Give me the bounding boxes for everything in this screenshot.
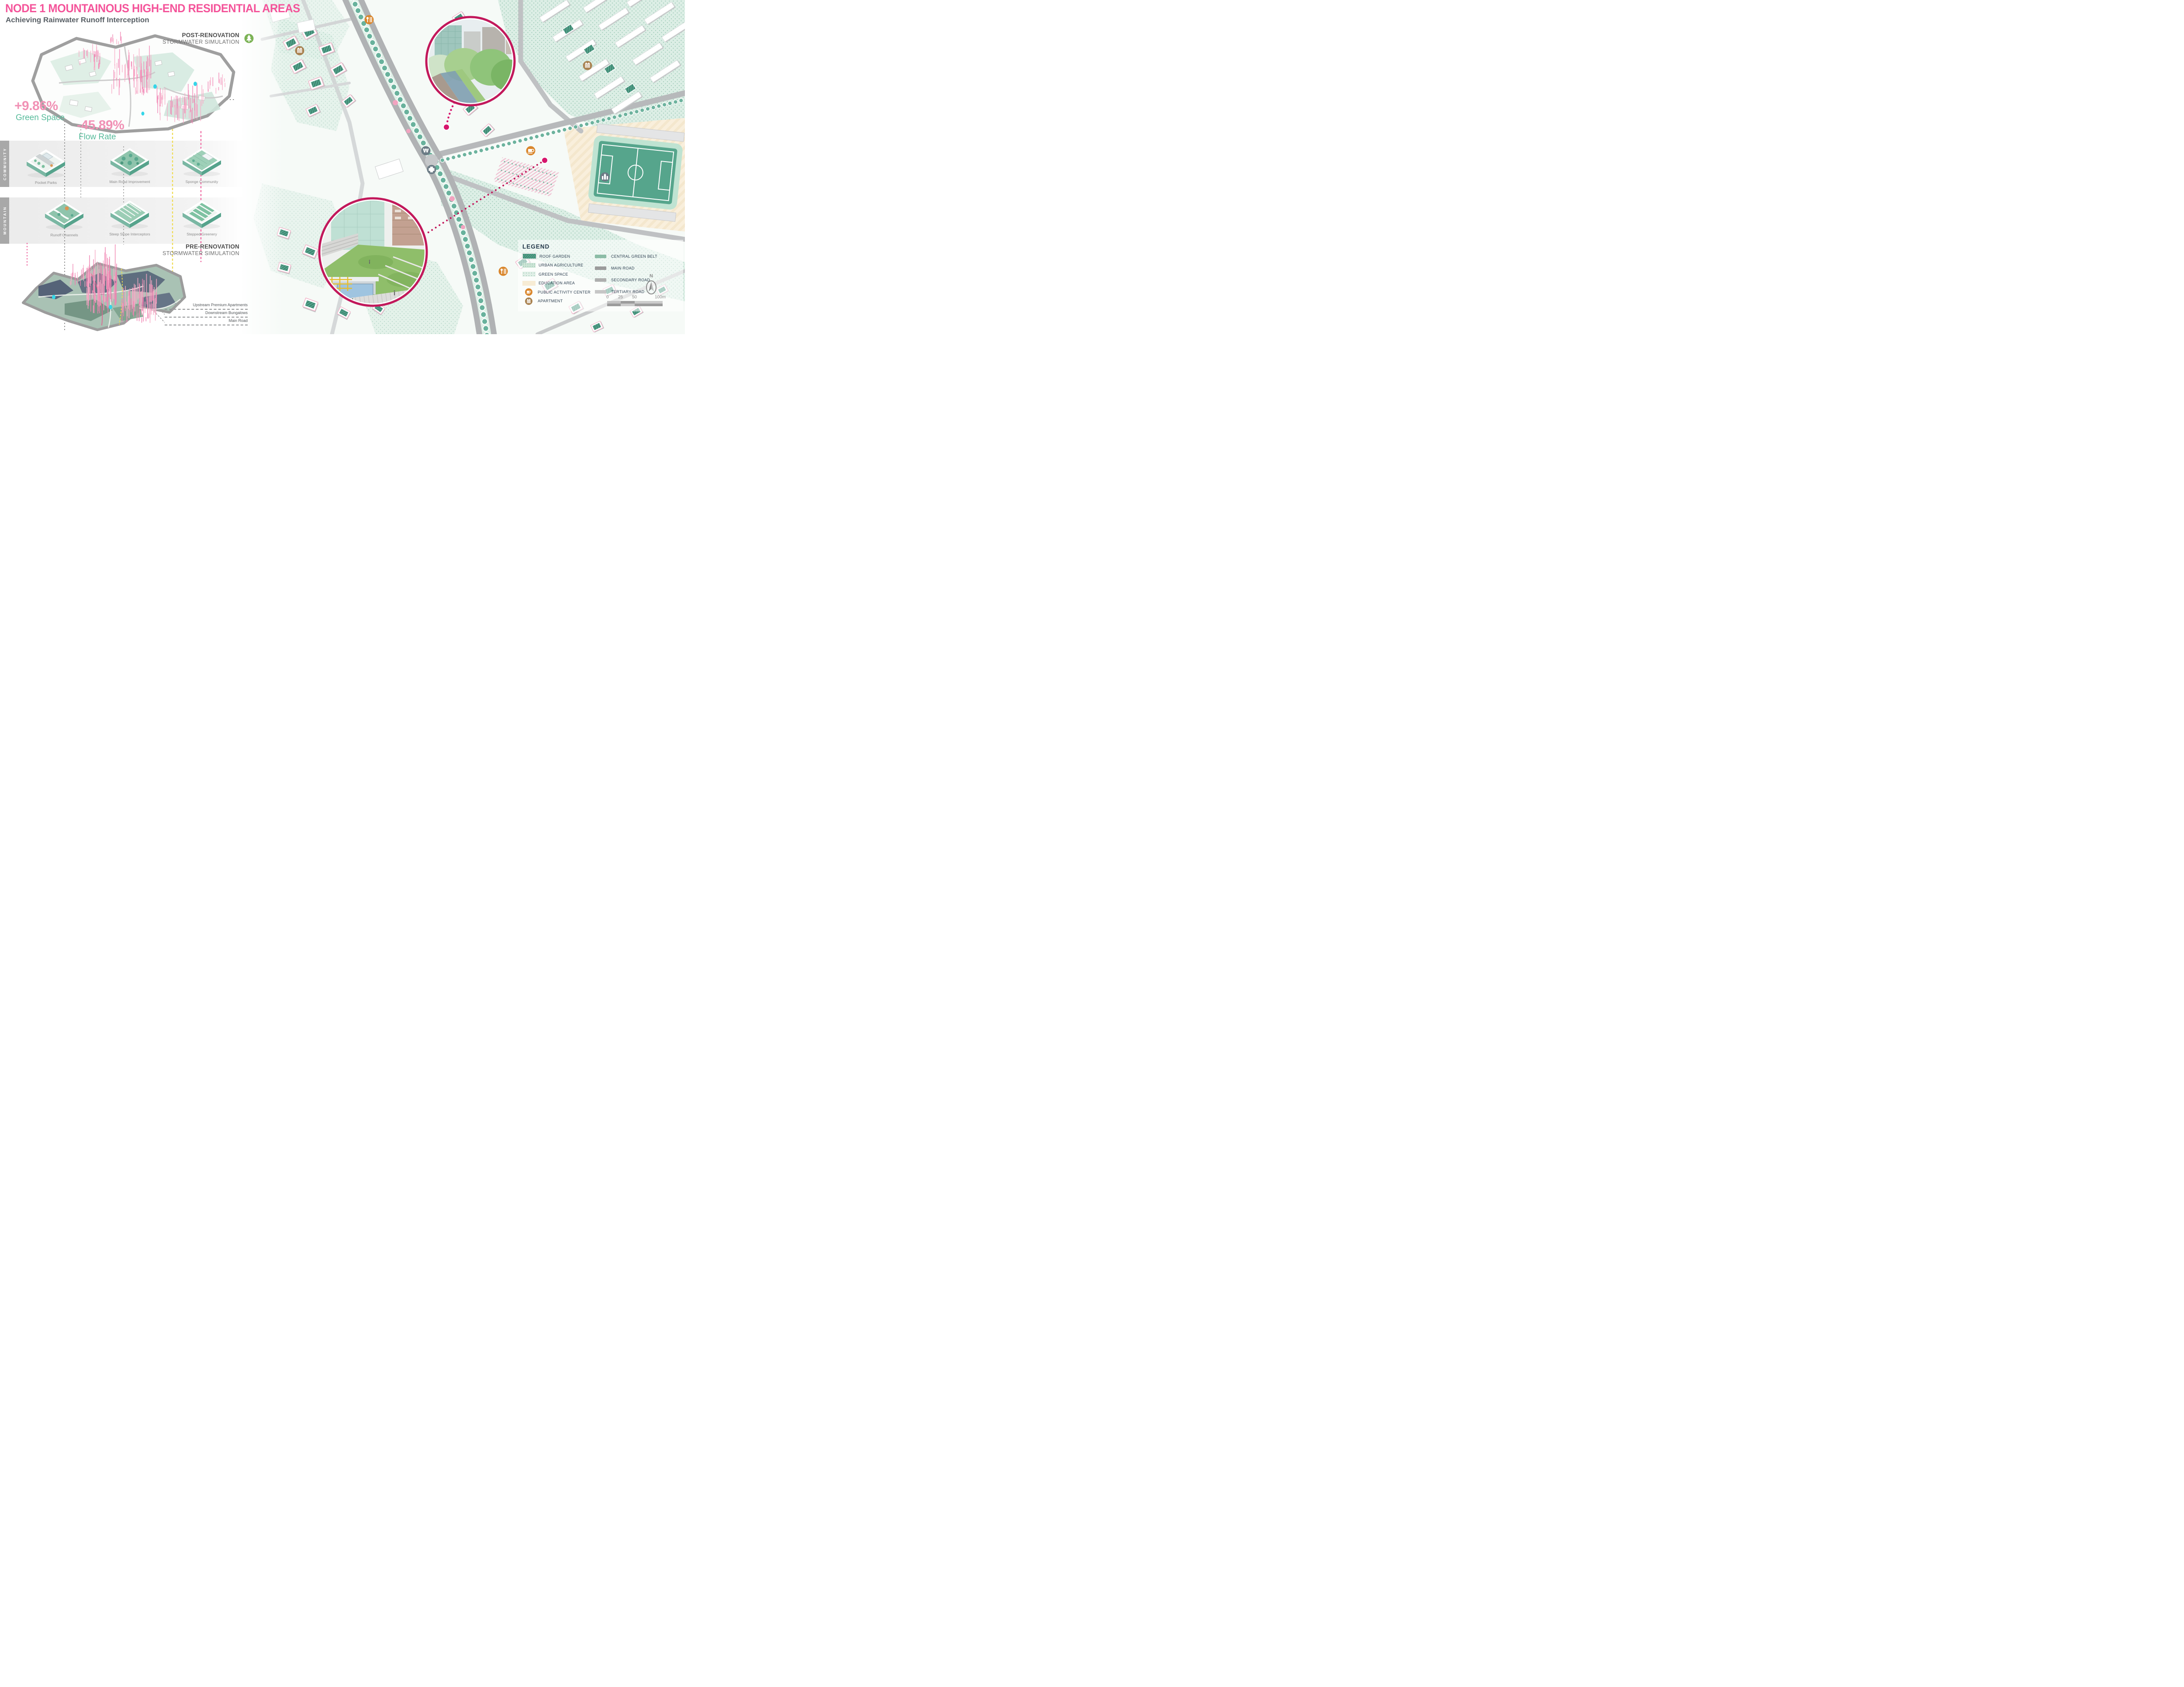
tertiary-road-swatch: [595, 290, 606, 294]
green-space-value: +9.86%: [14, 99, 58, 114]
legend-row-urban-agriculture: URBAN AGRICULTURE: [522, 262, 591, 269]
scale-tick-100m: 100m: [655, 295, 666, 300]
roof-garden-label: ROOF GARDEN: [539, 254, 570, 259]
mountain-tab: MOUNTAIN: [0, 197, 9, 244]
legend-title: LEGEND: [522, 243, 679, 250]
central-green-belt-label: CENTRAL GREEN BELT: [611, 254, 657, 259]
north-label: N: [650, 273, 653, 279]
pre-renovation-title: PRE-RENOVATION: [130, 243, 239, 250]
compass-icon: [645, 280, 657, 295]
item-label-steep-slope-interceptors: Steep Slope Interceptors: [109, 232, 150, 236]
post-renovation-title: POST-RENOVATION: [130, 32, 239, 38]
scale-tick-50: 50: [632, 295, 637, 300]
annotation-downstream-bungalows: Downstream Bungalows: [165, 311, 248, 318]
secondary-road-label: SECONDARY ROAD: [611, 278, 650, 282]
legend-left-column: ROOF GARDEN URBAN AGRICULTURE GREEN SPAC…: [522, 252, 591, 306]
main-road-label: MAIN ROAD: [611, 266, 635, 270]
green-space-label: Green Space: [16, 113, 65, 123]
school-icon: [601, 173, 610, 182]
scale-tick-25: 25: [618, 295, 623, 300]
page-subtitle: Achieving Rainwater Runoff Interception: [6, 16, 149, 24]
legend-row-education-area: EDUCATION AREA: [522, 280, 591, 287]
legend-row-apartment: APARTMENT: [522, 297, 591, 305]
item-label-stepped-greenery: Stepped Greenery: [187, 232, 217, 236]
hospital-icon: [427, 165, 436, 174]
secondary-road-swatch: [595, 278, 606, 282]
annotation-main-road: Main Road: [165, 318, 248, 325]
scale-tick-0: 0: [606, 295, 609, 300]
urban-agriculture-label: URBAN AGRICULTURE: [539, 263, 583, 267]
apartment-label: APARTMENT: [538, 299, 563, 303]
pre-renovation-header: PRE-RENOVATION STORMWATER SIMULATION: [130, 243, 239, 256]
svg-text:₩: ₩: [423, 148, 429, 154]
green-space-swatch-label: GREEN SPACE: [539, 272, 568, 277]
urban-agriculture-swatch: [522, 263, 536, 268]
education-area-swatch: [522, 281, 536, 286]
item-label-runoff-channels: Runoff Channels: [50, 233, 78, 237]
community-tab-label: COMMUNITY: [3, 148, 7, 180]
post-renovation-subtitle: STORMWATER SIMULATION: [130, 39, 239, 45]
coffee-cup-icon: [525, 288, 532, 296]
mountain-tab-label: MOUNTAIN: [3, 206, 7, 235]
presentation-board: ₩: [0, 0, 685, 334]
cafe-icon: [526, 146, 536, 156]
item-label-sponge-community: Sponge Community: [186, 180, 218, 184]
apartment-building-icon: [525, 297, 532, 305]
node-dot-1: [443, 124, 449, 130]
post-renovation-header: POST-RENOVATION STORMWATER SIMULATION: [130, 32, 239, 45]
main-road-swatch: [595, 266, 606, 270]
item-label-pocket-parks: Pocket Parks: [35, 180, 57, 185]
central-green-belt-swatch: [595, 255, 606, 258]
mountain-band: MOUNTAIN: [0, 197, 244, 244]
item-label-main-road-improvement: Main Road Improvement: [109, 180, 150, 184]
legend-row-green-space: GREEN SPACE: [522, 270, 591, 278]
flow-rate-label: Flow Rate: [79, 132, 116, 142]
market-icon: ₩: [422, 146, 431, 156]
community-tab: COMMUNITY: [0, 141, 9, 187]
tertiary-road-label: TERTIARY ROAD: [611, 290, 644, 294]
scale-bar: [607, 301, 663, 306]
roof-garden-swatch: [522, 253, 536, 259]
flow-rate-value: -45.89%: [77, 118, 124, 133]
annotation-upstream-apartments: Upstream Premium Apartments: [165, 303, 248, 310]
legend-row-main-road: MAIN ROAD: [595, 264, 657, 272]
education-area-label: EDUCATION AREA: [539, 281, 575, 285]
public-activity-center-label: PUBLIC ACTIVITY CENTER: [538, 290, 591, 294]
green-space-swatch: [522, 272, 536, 277]
node-dot-2: [542, 157, 548, 163]
legend-row-roof-garden: ROOF GARDEN: [522, 252, 591, 260]
legend-row-central-green-belt: CENTRAL GREEN BELT: [595, 252, 657, 260]
legend-row-public-activity-center: PUBLIC ACTIVITY CENTER: [522, 288, 591, 296]
page-title: NODE 1 MOUNTAINOUS HIGH-END RESIDENTIAL …: [5, 2, 300, 15]
pre-renovation-subtitle: STORMWATER SIMULATION: [130, 250, 239, 256]
